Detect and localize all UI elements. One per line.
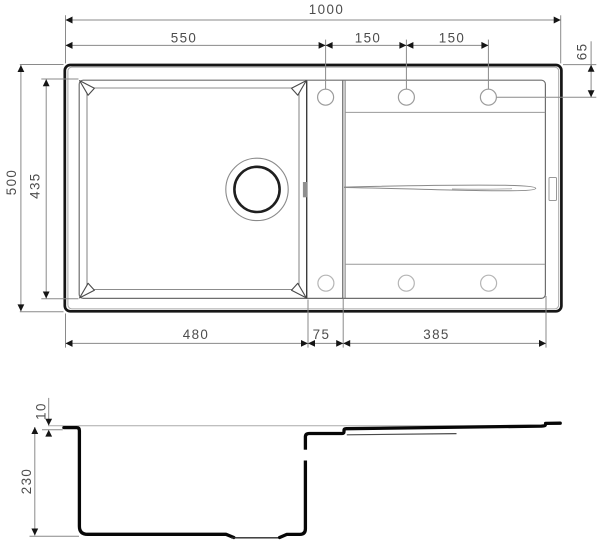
svg-text:10: 10	[33, 402, 48, 420]
svg-text:150: 150	[355, 31, 382, 46]
svg-text:500: 500	[4, 169, 19, 196]
svg-text:1000: 1000	[309, 2, 344, 17]
svg-text:480: 480	[183, 327, 210, 342]
svg-text:435: 435	[28, 172, 43, 199]
svg-text:385: 385	[423, 327, 450, 342]
svg-text:150: 150	[439, 31, 466, 46]
svg-text:230: 230	[19, 468, 34, 495]
svg-text:65: 65	[575, 43, 590, 61]
svg-text:550: 550	[171, 31, 198, 46]
svg-text:75: 75	[313, 327, 331, 342]
